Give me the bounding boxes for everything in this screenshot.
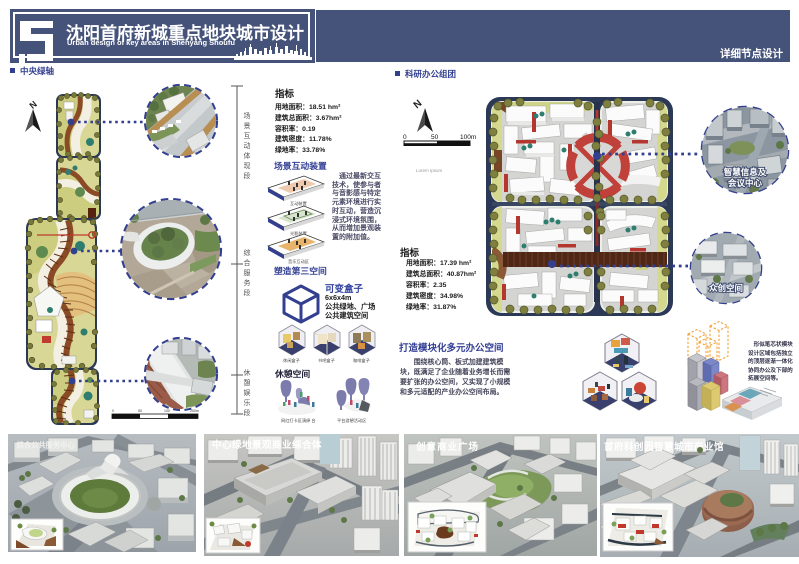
svg-text:咖啡盒子: 咖啡盒子 bbox=[353, 357, 370, 364]
svg-text:N: N bbox=[27, 99, 38, 111]
svg-text:众创空间: 众创空间 bbox=[709, 283, 743, 293]
svg-text:会议中心: 会议中心 bbox=[727, 178, 763, 188]
svg-text:50: 50 bbox=[138, 409, 142, 413]
svg-text:综合公共服务中心: 综合公共服务中心 bbox=[17, 441, 76, 450]
svg-text:创意商业广场: 创意商业广场 bbox=[415, 441, 479, 453]
svg-text:100: 100 bbox=[164, 409, 170, 413]
svg-text:中心绿地景观商业综合体: 中心绿地景观商业综合体 bbox=[212, 439, 322, 451]
svg-text:0: 0 bbox=[403, 134, 407, 141]
svg-text:休闲盒子: 休闲盒子 bbox=[283, 357, 300, 364]
svg-text:0: 0 bbox=[112, 409, 114, 413]
svg-text:智慧信息及: 智慧信息及 bbox=[723, 167, 767, 177]
svg-text:N: N bbox=[412, 98, 425, 111]
svg-text:网红打卡区演绎 台: 网红打卡区演绎 台 bbox=[281, 417, 316, 424]
svg-text:平台游憩活动区: 平台游憩活动区 bbox=[337, 417, 366, 424]
svg-text:200m: 200m bbox=[190, 409, 199, 413]
svg-text:书吧盒子: 书吧盒子 bbox=[318, 357, 335, 364]
svg-text:50: 50 bbox=[431, 134, 439, 141]
svg-text:首府科创园智慧城市产业馆: 首府科创园智慧城市产业馆 bbox=[604, 441, 724, 453]
svg-text:100m: 100m bbox=[460, 134, 476, 141]
